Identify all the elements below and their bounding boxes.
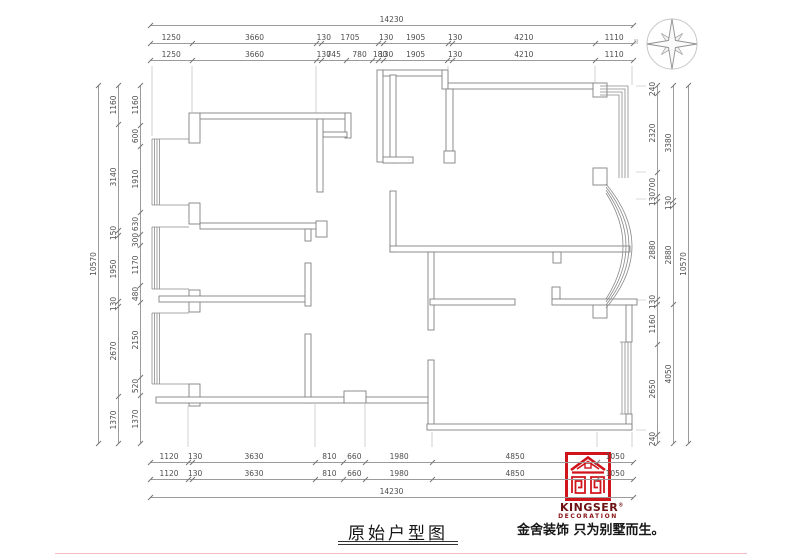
dim-bottom-row1: 11201303630810660198048501050 [150, 450, 633, 462]
dimension-label: 745 [321, 51, 346, 59]
extension-lines [152, 66, 646, 447]
dimension-label: 4850 [433, 470, 598, 478]
dimension-label: 1370 [110, 410, 118, 429]
dimension-label: 1160 [110, 95, 118, 114]
dimension-segment: 1370 [128, 395, 141, 443]
dimension-segment: 14230 [150, 485, 633, 498]
dimension-label: 240 [649, 432, 657, 446]
title-underline [338, 541, 458, 542]
dimension-segment: 14230 [150, 13, 633, 26]
dimension-label: 600 [132, 129, 140, 143]
dimension-label: 1110 [595, 34, 633, 42]
dimension-label: 660 [343, 470, 365, 478]
floorplan-sheet: 14230 125036601301705130190513042101110 … [0, 0, 800, 560]
dimension-label: 1050 [597, 453, 633, 461]
dimension-segment: 4850 [433, 467, 598, 480]
registered-mark: ® [618, 502, 624, 508]
dimension-label: 810 [316, 470, 344, 478]
dimension-label: 3630 [192, 453, 315, 461]
dimension-label: 660 [343, 453, 365, 461]
dimension-segment: 1120 [150, 450, 188, 463]
dimension-label: 4210 [452, 51, 595, 59]
dimension-label: 3660 [192, 34, 316, 42]
dimension-segment: 3660 [192, 48, 316, 61]
dimension-label: 3630 [192, 470, 315, 478]
dimension-label: 1905 [383, 51, 448, 59]
dimension-segment: 780 [346, 48, 372, 61]
dimension-label: 2150 [132, 330, 140, 349]
dim-left-outer: 10570 [86, 85, 98, 443]
dimension-label: 1950 [110, 259, 118, 278]
dimension-segment: 3140 [106, 124, 119, 230]
dimension-label: 1160 [649, 315, 657, 334]
dimension-label: 4210 [452, 34, 595, 42]
dimension-label: 14230 [150, 16, 633, 24]
dim-top-row2: 12503660130745780180130190513042101110 [150, 48, 633, 60]
dimension-segment: 240 [645, 85, 658, 93]
dimension-label: 2670 [110, 342, 118, 361]
dimension-label: 3380 [665, 133, 673, 152]
dimension-segment: 10570 [86, 85, 99, 443]
dimension-label: 630 [132, 216, 140, 230]
title-underline [338, 544, 458, 545]
dim-bottom-row2: 11201303630810660198048501050 [150, 467, 633, 479]
dimension-label: 1160 [132, 96, 140, 115]
dimension-segment: 1950 [106, 236, 119, 302]
dimension-label: 2880 [649, 241, 657, 260]
dimension-segment: 1910 [128, 146, 141, 212]
dimension-segment: 1905 [383, 31, 448, 44]
dim-right-outer: 10570 [676, 85, 688, 443]
dimension-segment: 810 [316, 450, 344, 463]
walls-group [156, 70, 637, 430]
dim-left-middle: 11603140150195013026701370 [106, 85, 118, 443]
dim-left-inner: 11606001910630300117048021505201370 [128, 85, 140, 443]
dimension-segment: 745 [321, 48, 346, 61]
dimension-label: 10570 [680, 252, 688, 276]
dimension-label: 1910 [132, 170, 140, 189]
dimension-label: 1120 [150, 453, 188, 461]
dimension-label: 810 [316, 453, 344, 461]
dimension-segment: 4050 [661, 304, 674, 443]
dimension-segment: 520 [128, 377, 141, 395]
dimension-label: 1905 [383, 34, 448, 42]
dimension-segment: 1250 [150, 31, 192, 44]
dimension-segment: 480 [128, 286, 141, 303]
dimension-label: 700 [649, 178, 657, 192]
dimension-label: 1250 [150, 34, 192, 42]
dimension-label: 2320 [649, 123, 657, 142]
dimension-segment: 660 [343, 450, 365, 463]
dimension-segment: 4210 [452, 31, 595, 44]
dimension-segment: 1705 [321, 31, 379, 44]
dimension-segment: 4850 [433, 450, 598, 463]
dimension-label: 1120 [150, 470, 188, 478]
dimension-segment: 1050 [597, 467, 633, 480]
dimension-label: 1110 [595, 51, 633, 59]
dimension-label: 1370 [132, 410, 140, 429]
dimension-segment: 3630 [192, 450, 315, 463]
dimension-segment: 1110 [595, 31, 633, 44]
dimension-segment: 1050 [597, 450, 633, 463]
dimension-segment: 1905 [383, 48, 448, 61]
dimension-segment: 2880 [645, 201, 658, 300]
dimension-segment: 2650 [645, 344, 658, 435]
dimension-segment: 1160 [128, 85, 141, 125]
dimension-segment: 1980 [366, 467, 433, 480]
dim-top-total: 14230 [150, 13, 633, 25]
dimension-label: 2650 [649, 380, 657, 399]
dimension-label: 3140 [110, 168, 118, 187]
footer-rule [55, 553, 747, 554]
dimension-segment: 2320 [645, 93, 658, 172]
dimension-segment: 1170 [128, 245, 141, 286]
brand-slogan: 金舍装饰 只为别墅而生。 [517, 519, 665, 538]
dimension-label: 1170 [132, 256, 140, 275]
dimension-segment: 10570 [676, 85, 689, 443]
dimension-segment: 1250 [150, 48, 192, 61]
dimension-segment: 810 [316, 467, 344, 480]
dimension-segment: 300 [128, 235, 141, 245]
dimension-segment: 1120 [150, 467, 188, 480]
dimension-segment: 2880 [661, 205, 674, 304]
dimension-segment: 1370 [106, 397, 119, 443]
dimension-segment: 630 [128, 213, 141, 235]
dimension-segment: 600 [128, 125, 141, 146]
dim-right-middle: 338013028804050 [661, 85, 673, 443]
dimension-segment: 1980 [366, 450, 433, 463]
dimension-label: 520 [132, 379, 140, 393]
dimension-label: 10570 [90, 252, 98, 276]
dimension-segment: 1160 [106, 85, 119, 124]
dimension-segment: 240 [645, 435, 658, 443]
dimension-segment: 3630 [192, 467, 315, 480]
dimension-label: 780 [346, 51, 372, 59]
dimension-label: 480 [132, 287, 140, 301]
dimension-label: 1705 [321, 34, 379, 42]
dim-bottom-total: 14230 [150, 485, 633, 497]
dimension-segment: 2150 [128, 302, 141, 377]
dimension-label: 1980 [366, 453, 433, 461]
dimension-segment: 660 [343, 467, 365, 480]
dim-right-inner: 2402320700130288013011602650240 [645, 85, 657, 443]
dimension-label: 4850 [433, 453, 598, 461]
dimension-label: 3660 [192, 51, 316, 59]
dimension-segment: 2670 [106, 306, 119, 396]
dimension-segment: 3660 [192, 31, 316, 44]
dimension-segment: 4210 [452, 48, 595, 61]
dimension-segment: 3380 [661, 85, 674, 201]
dimension-segment: 1160 [645, 304, 658, 344]
compass-rose-icon [647, 19, 697, 69]
dimension-label: 1050 [597, 470, 633, 478]
dimension-label: 1980 [366, 470, 433, 478]
dimension-segment: 1110 [595, 48, 633, 61]
dim-top-row1: 125036601301705130190513042101110 [150, 31, 633, 43]
dimension-label: 2880 [665, 245, 673, 264]
dimension-label: 4050 [665, 364, 673, 383]
dimension-label: 1250 [150, 51, 192, 59]
dimension-label: 14230 [150, 488, 633, 496]
north-mark: II [634, 38, 638, 46]
